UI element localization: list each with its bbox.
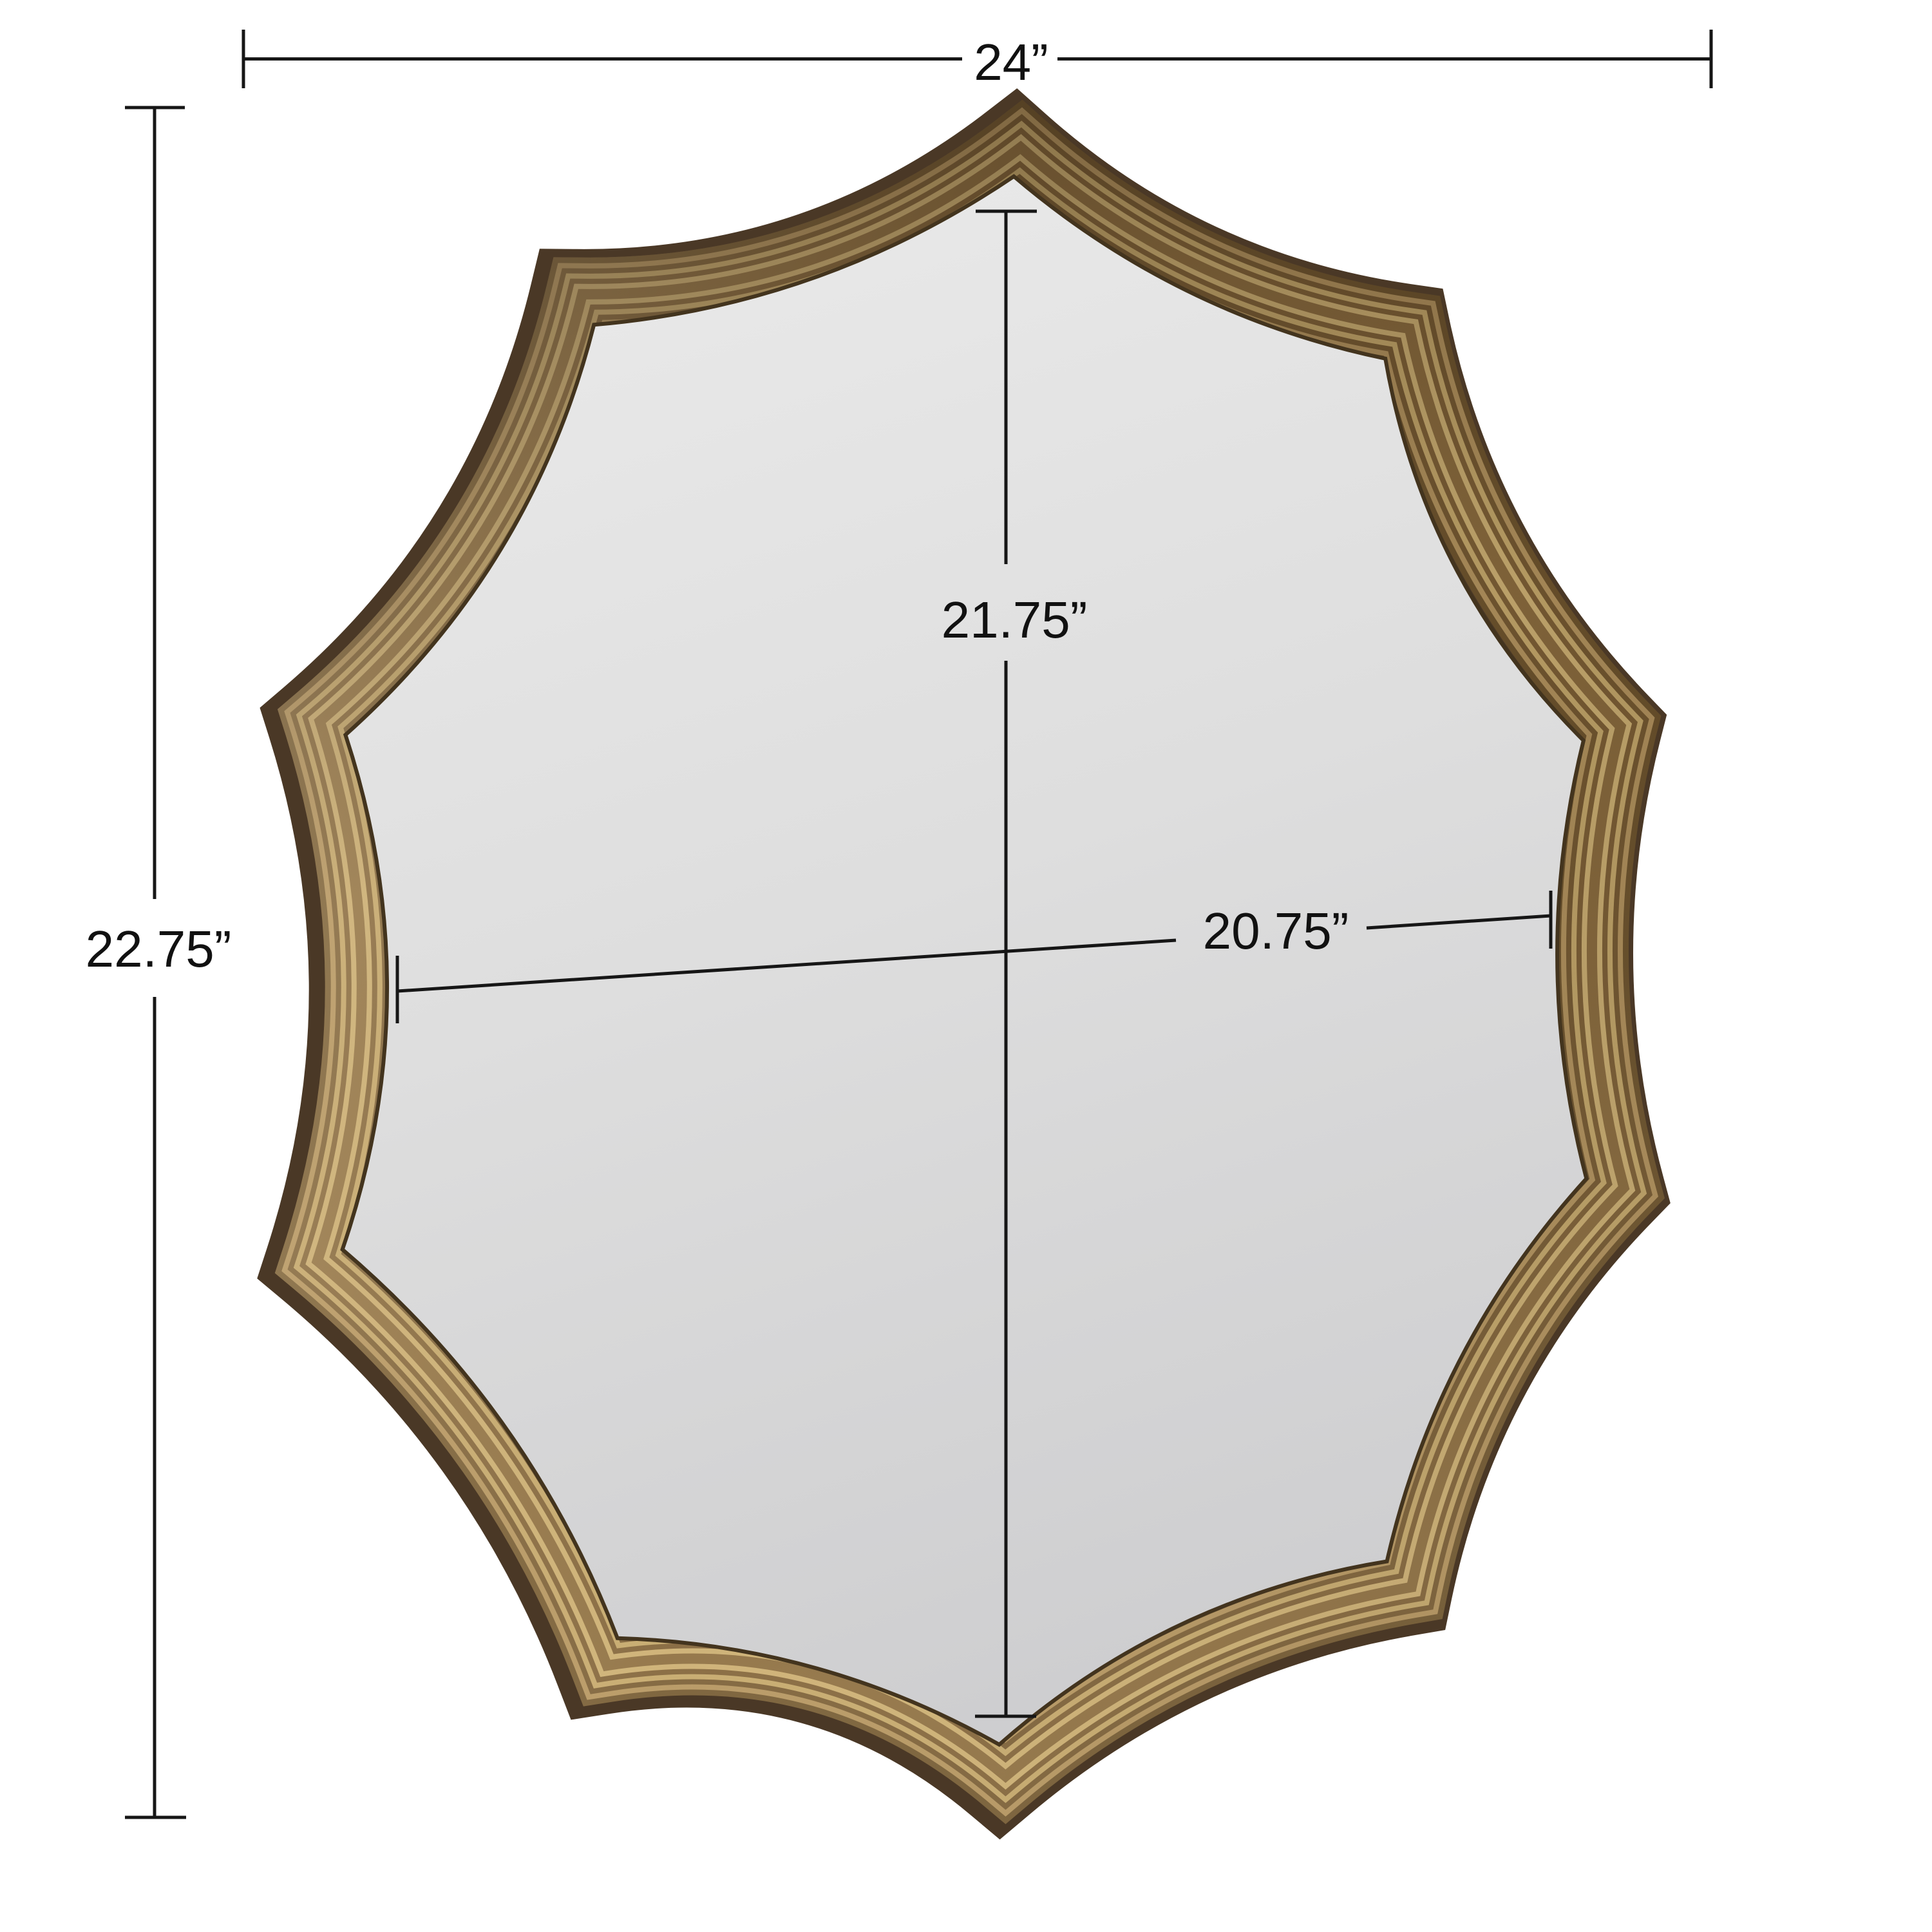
svg-text:21.75”: 21.75”: [942, 591, 1088, 649]
svg-text:22.75”: 22.75”: [86, 920, 232, 978]
svg-text:20.75”: 20.75”: [1203, 902, 1349, 960]
svg-text:24”: 24”: [974, 33, 1048, 91]
